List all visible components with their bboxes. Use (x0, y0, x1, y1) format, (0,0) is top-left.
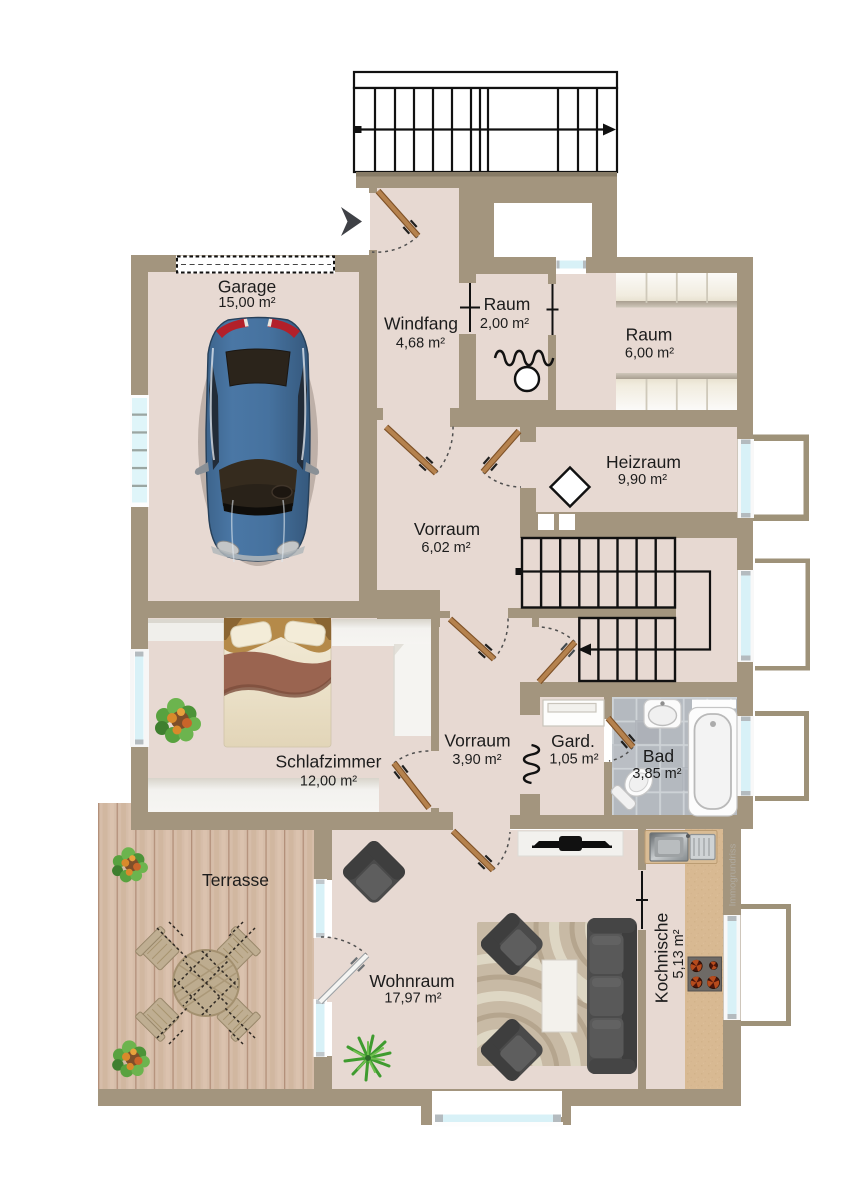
svg-text:15,00 m²: 15,00 m² (218, 295, 275, 311)
svg-text:4,68 m²: 4,68 m² (396, 336, 445, 352)
svg-text:6,02 m²: 6,02 m² (421, 540, 470, 556)
svg-text:Immogrundriss: Immogrundriss (728, 843, 739, 906)
svg-text:1,05 m²: 1,05 m² (549, 752, 598, 768)
svg-text:17,97 m²: 17,97 m² (384, 991, 441, 1007)
svg-text:Windfang: Windfang (384, 314, 458, 334)
svg-text:Raum: Raum (484, 294, 531, 314)
svg-text:9,90 m²: 9,90 m² (618, 472, 667, 488)
svg-text:Schlafzimmer: Schlafzimmer (276, 752, 382, 772)
svg-text:Raum: Raum (626, 325, 673, 345)
svg-text:12,00 m²: 12,00 m² (300, 774, 357, 790)
svg-text:3,85 m²: 3,85 m² (632, 766, 681, 782)
svg-text:Gard.: Gard. (551, 731, 595, 751)
svg-text:Kochnische: Kochnische (652, 913, 672, 1003)
svg-text:5,13 m²: 5,13 m² (671, 929, 687, 978)
svg-text:Vorraum: Vorraum (444, 731, 510, 751)
svg-text:2,00 m²: 2,00 m² (480, 316, 529, 332)
svg-text:Bad: Bad (643, 746, 674, 766)
svg-text:Vorraum: Vorraum (414, 519, 480, 539)
svg-text:Heizraum: Heizraum (606, 452, 681, 472)
svg-text:6,00 m²: 6,00 m² (625, 346, 674, 362)
svg-text:Terrasse: Terrasse (202, 870, 269, 890)
svg-text:Wohnraum: Wohnraum (369, 971, 454, 991)
svg-text:3,90 m²: 3,90 m² (452, 752, 501, 768)
svg-text:Garage: Garage (218, 277, 276, 297)
